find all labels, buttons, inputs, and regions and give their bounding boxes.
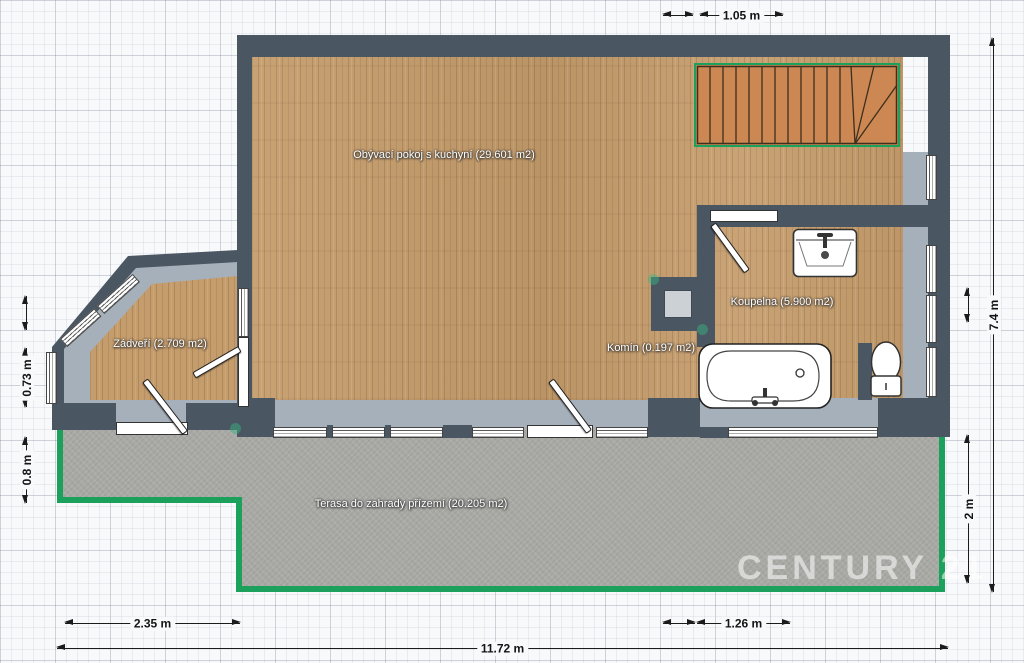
arrow-left-icon [699, 11, 708, 17]
dimension-label: 11.72 m [477, 642, 528, 656]
dimension-right-small-segment [968, 288, 969, 322]
dimension-bottom-total: 11.72 m [57, 648, 948, 649]
arrow-right-icon [775, 11, 784, 17]
living-room-label: Obývací pokoj s kuchyní (29.601 m2) [353, 149, 535, 161]
terrace-label: Terasa do zahrady přízemí (20.205 m2) [315, 498, 508, 510]
century21-watermark: CENTURY 21 [737, 549, 987, 588]
arrow-up-icon [964, 434, 970, 443]
bathtub [697, 342, 833, 410]
dimension-top-width: 1.05 m [700, 15, 783, 16]
south-window-6 [728, 427, 878, 438]
arrow-down-icon [989, 584, 995, 593]
toilet [867, 340, 905, 400]
arrow-right-icon [940, 644, 949, 650]
east-window-1 [926, 155, 937, 200]
arrow-up-icon [22, 436, 28, 445]
corner-accent-3 [230, 423, 241, 434]
arrow-left-icon [56, 644, 65, 650]
dimension-bottom-left: 2.35 m [65, 623, 240, 624]
entry-label: Zádveří (2.709 m2) [113, 338, 207, 350]
entry-south-wall-left [52, 403, 116, 430]
dimension-left-lower: 0.8 m [26, 437, 27, 503]
arrow-down-icon [22, 495, 28, 504]
east-window-2 [926, 245, 937, 293]
east-window-3 [926, 295, 937, 343]
dimension-bottom-small-segment [663, 623, 695, 624]
staircase [694, 63, 900, 147]
bathroom-door-opening [710, 210, 778, 222]
entry-west-window [46, 352, 57, 404]
entry-living-door-opening [238, 337, 249, 407]
dimension-label: 7.4 m [987, 296, 1001, 335]
south-pier-5 [648, 398, 700, 437]
dimension-label: 2 m [962, 495, 976, 524]
south-window-3 [390, 427, 443, 438]
arrow-right-icon [685, 11, 694, 17]
arrow-right-icon [232, 619, 241, 625]
corner-accent-1 [648, 274, 659, 285]
arrow-left-icon [662, 619, 671, 625]
arrow-down-icon [964, 314, 970, 323]
arrow-right-icon [782, 619, 791, 625]
dimension-label: 2.35 m [130, 617, 175, 631]
south-pier-4 [443, 425, 472, 438]
corner-accent-2 [697, 324, 708, 335]
arrow-down-icon [22, 322, 28, 331]
dimension-top-small-segment [663, 15, 693, 16]
dimension-label: 1.05 m [719, 9, 764, 23]
dimension-label: 0.73 m [20, 355, 34, 400]
sink [792, 228, 858, 278]
floor-plan-canvas: Obývací pokoj s kuchyní (29.601 m2) Zádv… [0, 0, 1024, 663]
south-pier-7 [878, 398, 950, 437]
bathroom-label: Koupelna (5.900 m2) [731, 296, 834, 308]
north-wall [237, 35, 950, 57]
arrow-down-icon [964, 575, 970, 584]
dimension-right-terrace: 2 m [968, 435, 969, 583]
arrow-up-icon [964, 287, 970, 296]
entry-east-window [238, 288, 249, 337]
arrow-right-icon [687, 619, 696, 625]
dimension-right-total: 7.4 m [993, 38, 994, 592]
arrow-up-icon [22, 295, 28, 304]
south-pier-6 [700, 427, 728, 438]
chimney-label: Komín (0.197 m2) [607, 342, 695, 354]
dimension-left-small-segment [26, 296, 27, 330]
dimension-label: 1.26 m [721, 617, 766, 631]
arrow-left-icon [696, 619, 705, 625]
south-window-5 [596, 427, 648, 438]
dimension-bottom-right: 1.26 m [697, 623, 790, 624]
south-window-2 [332, 427, 385, 438]
south-window-sill [252, 400, 700, 427]
south-window-1 [273, 427, 327, 438]
arrow-up-icon [989, 37, 995, 46]
dimension-label: 0.8 m [20, 451, 34, 490]
east-window-sill [903, 152, 928, 405]
dimension-left-upper: 0.73 m [26, 348, 27, 407]
chimney-shaft [664, 290, 692, 318]
south-window-4 [472, 427, 524, 438]
arrow-left-icon [64, 619, 73, 625]
arrow-left-icon [662, 11, 671, 17]
east-window-4 [926, 347, 937, 397]
